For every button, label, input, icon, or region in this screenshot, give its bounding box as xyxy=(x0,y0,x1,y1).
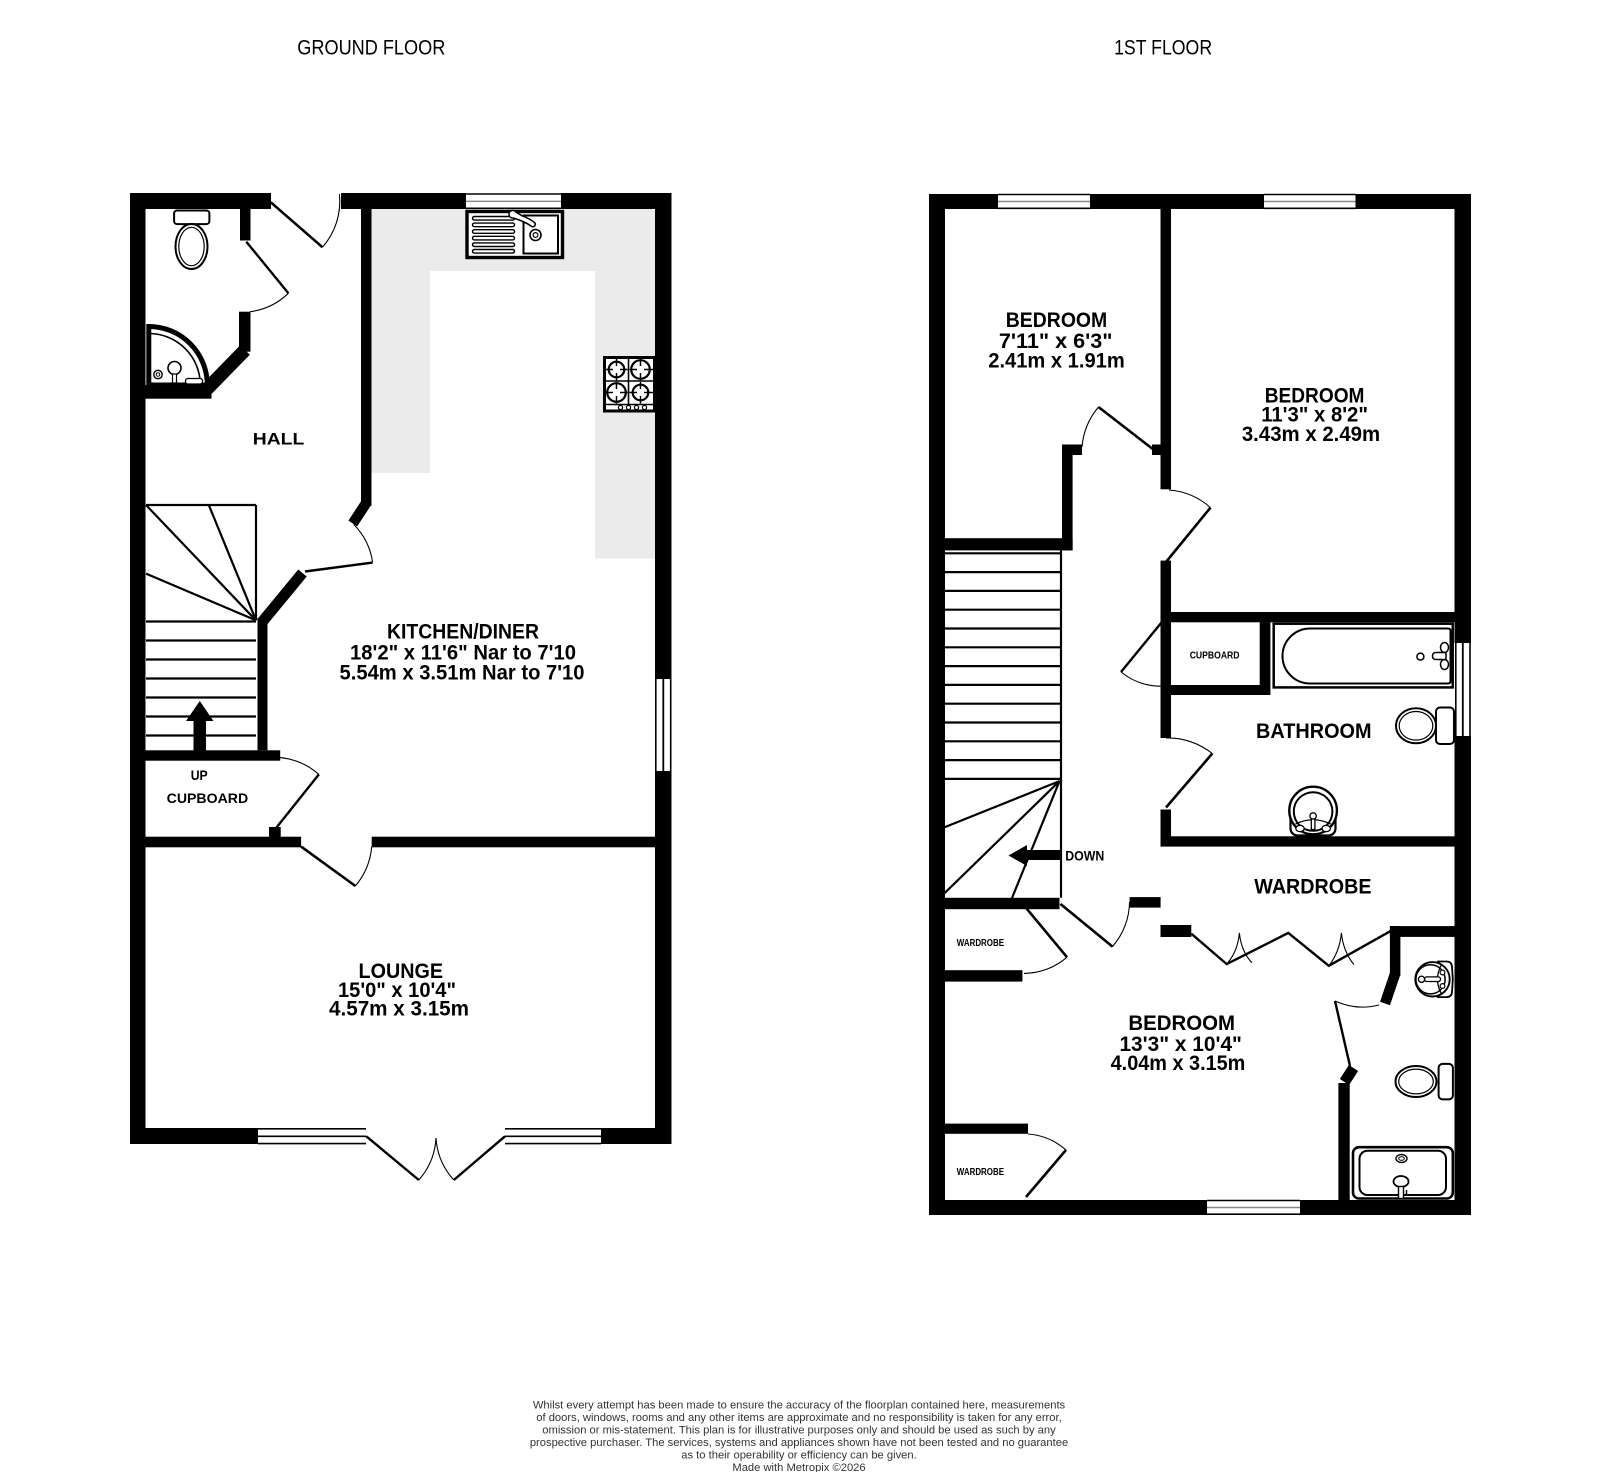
svg-text:3.43m x 2.49m: 3.43m x 2.49m xyxy=(1242,423,1380,446)
svg-text:prospective purchaser. The ser: prospective purchaser. The services, sys… xyxy=(530,1437,1068,1449)
svg-text:5.54m x 3.51m Nar to 7'10: 5.54m x 3.51m Nar to 7'10 xyxy=(340,662,585,685)
svg-text:HALL: HALL xyxy=(253,430,305,449)
svg-text:as to their operability or eff: as to their operability or efficiency ca… xyxy=(681,1450,916,1462)
svg-text:BEDROOM: BEDROOM xyxy=(1128,1012,1235,1035)
svg-text:UP: UP xyxy=(191,767,208,783)
svg-text:CUPBOARD: CUPBOARD xyxy=(1190,649,1240,661)
svg-text:2.41m x 1.91m: 2.41m x 1.91m xyxy=(988,349,1125,372)
svg-text:BATHROOM: BATHROOM xyxy=(1256,720,1372,743)
svg-text:KITCHEN/DINER: KITCHEN/DINER xyxy=(387,621,539,644)
svg-text:WARDROBE: WARDROBE xyxy=(957,937,1004,949)
svg-text:Whilst every attempt has been: Whilst every attempt has been made to en… xyxy=(533,1400,1066,1412)
svg-text:WARDROBE: WARDROBE xyxy=(1254,876,1371,899)
svg-text:omission or mis-statement. Thi: omission or mis-statement. This plan is … xyxy=(542,1425,1056,1437)
svg-text:DOWN: DOWN xyxy=(1065,847,1104,863)
svg-text:4.57m x 3.15m: 4.57m x 3.15m xyxy=(329,998,469,1021)
svg-text:of doors, windows, rooms and a: of doors, windows, rooms and any other i… xyxy=(536,1412,1061,1424)
svg-text:Made with Metropix ©2026: Made with Metropix ©2026 xyxy=(732,1462,865,1472)
svg-text:GROUND FLOOR: GROUND FLOOR xyxy=(297,37,445,60)
svg-text:1ST FLOOR: 1ST FLOOR xyxy=(1114,37,1212,60)
svg-text:BEDROOM: BEDROOM xyxy=(1006,309,1108,332)
svg-text:CUPBOARD: CUPBOARD xyxy=(167,790,249,806)
svg-text:4.04m x 3.15m: 4.04m x 3.15m xyxy=(1111,1052,1246,1075)
svg-text:WARDROBE: WARDROBE xyxy=(957,1166,1004,1178)
